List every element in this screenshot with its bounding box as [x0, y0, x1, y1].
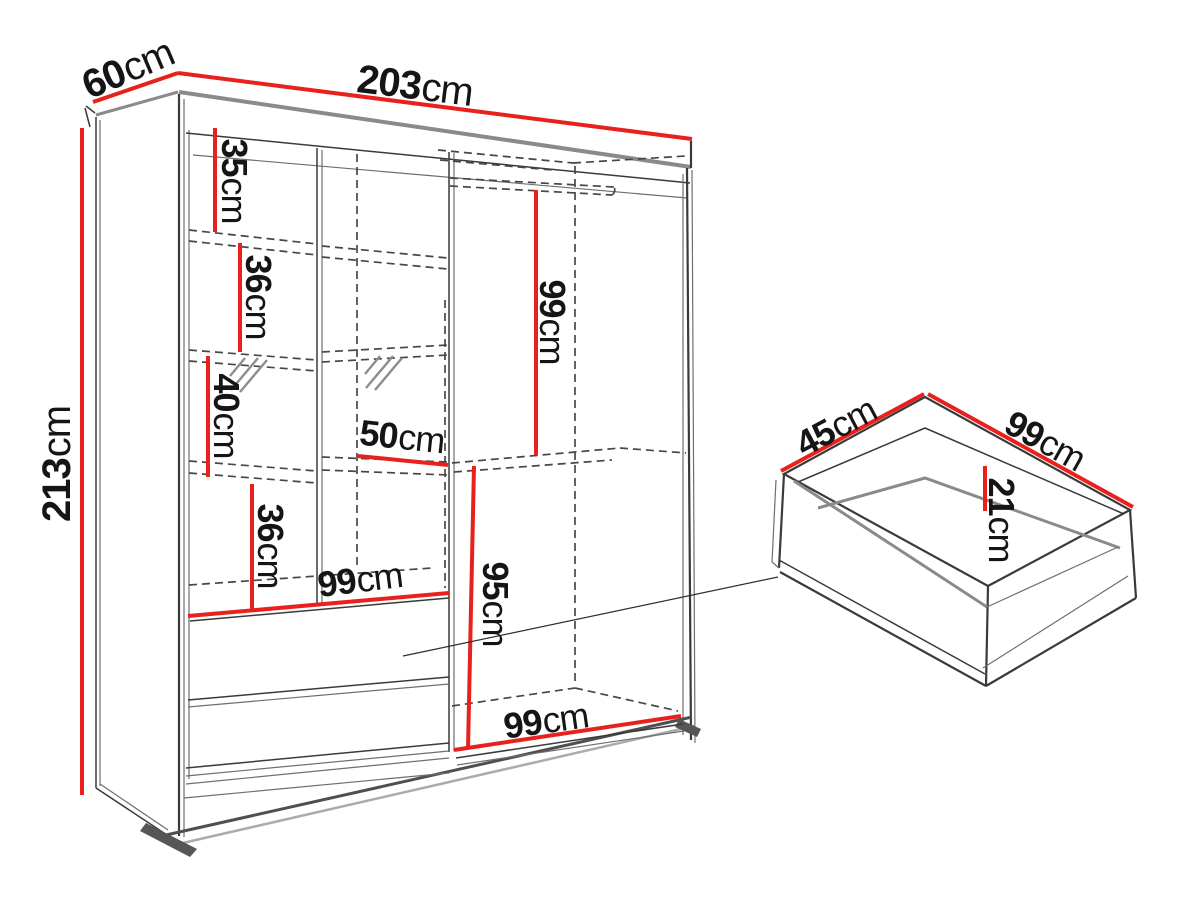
right-edge — [687, 168, 691, 740]
drawer-floor-back — [818, 478, 1120, 548]
shelf-dashed — [322, 345, 448, 352]
drawer-divider — [188, 677, 449, 700]
dim-lower-section-height: 95cm — [477, 561, 513, 646]
shelf-dashed — [189, 230, 317, 244]
dim-hanging-height: 99cm — [534, 279, 570, 364]
dim-drawers-width: 99cm — [316, 557, 405, 603]
dim-shelf-top: 35cm — [216, 138, 252, 223]
shelf-dashed — [189, 241, 317, 255]
left-door-bottom-rail — [186, 743, 449, 768]
right-foot-shadow — [675, 719, 701, 737]
shelf-dashed — [322, 355, 448, 362]
drawer-front-bottom-inner — [779, 560, 985, 674]
dim-shelf-section-width: 50cm — [358, 415, 446, 460]
dim-shelf-second: 36cm — [240, 254, 276, 339]
dim-wardrobe-height: 213cm — [37, 406, 77, 522]
left-bottom-edge — [96, 788, 167, 835]
interior-ceiling-edge — [193, 155, 687, 198]
dim-drawer-height: 21cm — [983, 477, 1019, 562]
drawer-left-sliver — [772, 480, 776, 562]
hanging-rod-dashed — [450, 186, 612, 195]
drawer-right-bottom — [986, 598, 1136, 686]
drawer-left-sliver-bottom — [772, 562, 779, 568]
plinth-top-edge — [184, 773, 449, 798]
dim-line-lower-95 — [468, 466, 474, 749]
shelf-dashed — [322, 257, 448, 269]
drawer-right-bottom-inner — [983, 576, 1128, 668]
drawer-front-wall-inner — [794, 481, 987, 607]
shelf-dashed — [620, 448, 686, 453]
drawer-front-corner — [986, 586, 988, 686]
shelf-dashed — [440, 160, 552, 170]
floor-back-dashed — [575, 688, 678, 711]
shelf-dashed — [322, 246, 448, 258]
mirror-icon — [365, 356, 402, 390]
left-bottom-edge-inner — [100, 784, 168, 830]
back-corner-edge — [85, 108, 90, 127]
drawer-right-edge — [1130, 510, 1136, 598]
drawer-divider-inner — [188, 684, 449, 707]
shelf-dashed — [454, 460, 612, 472]
right-edge-outer — [692, 170, 695, 743]
drawer-leader-line — [403, 577, 778, 656]
drawer-front-bottom — [780, 572, 986, 686]
wardrobe-diagram — [82, 73, 701, 857]
front-opening-top — [186, 133, 690, 183]
furniture-dimension-diagram: 60cm 203cm 213cm 35cm 36cm 40cm 36cm 50c… — [0, 0, 1200, 901]
left-foot-shadow — [140, 823, 197, 857]
drawer-left-edge — [779, 474, 784, 568]
shelf-dashed — [322, 470, 448, 475]
dim-shelf-fourth: 36cm — [252, 503, 288, 588]
dim-shelf-mirror: 40cm — [208, 373, 244, 458]
